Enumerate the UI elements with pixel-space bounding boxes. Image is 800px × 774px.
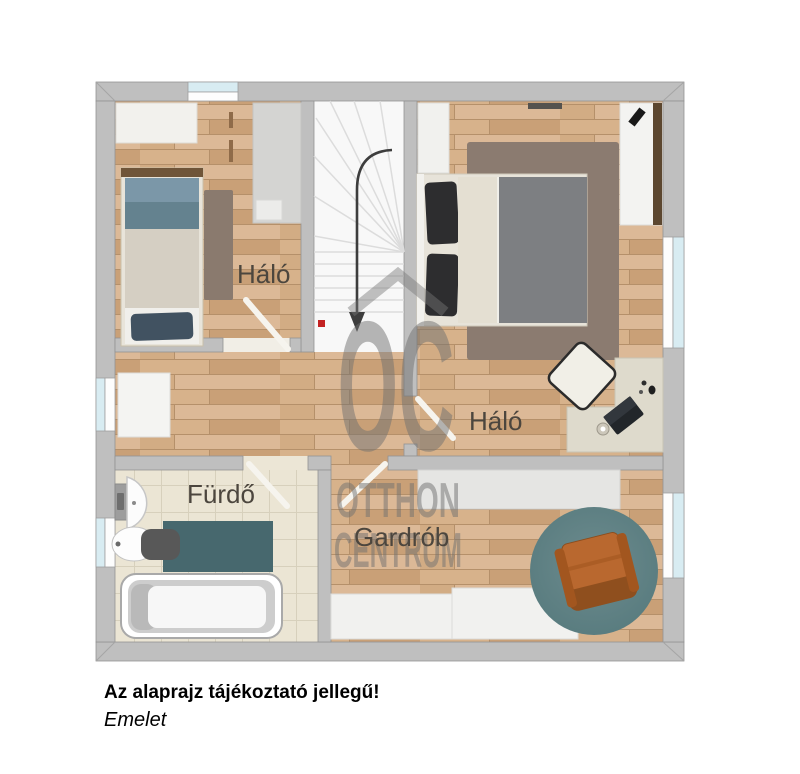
floor-name: Emelet <box>104 708 380 732</box>
label-master-bedroom: Háló <box>469 406 522 436</box>
single-bed-pillow <box>131 312 194 341</box>
double-bed-blanket <box>499 177 587 323</box>
single-bed-blanket-bottom <box>125 202 199 229</box>
wall-middle-long-center <box>308 456 331 470</box>
wall-bedroom-bottom-right <box>290 338 301 352</box>
wall-bedroom-stairs <box>301 101 314 352</box>
single-bed-cover <box>125 229 199 308</box>
single-bed-blanket-top <box>125 178 199 202</box>
floorplan-page: OC OTTHON CENTRUM Háló Háló Fürdő Gardró… <box>0 0 800 774</box>
closet-grey-inner <box>256 200 282 220</box>
window-top <box>188 82 238 101</box>
window-left-hallway <box>96 378 115 431</box>
stair-red-marker <box>318 320 325 327</box>
master-wardrobe-side <box>653 103 662 225</box>
watermark-logo: OC <box>338 284 455 490</box>
label-bathroom: Fürdő <box>187 479 255 509</box>
master-dresser <box>418 103 449 173</box>
hallway-dresser <box>118 373 170 437</box>
floorplan-drawing: OC OTTHON CENTRUM Háló Háló Fürdő Gardró… <box>0 0 800 695</box>
outer-wall-top <box>96 82 684 101</box>
window-right-wardrobe <box>663 493 684 578</box>
shelf-edge-mark1 <box>229 112 233 128</box>
double-bed-sheet-edge <box>497 177 499 323</box>
small-bedroom-rug <box>204 190 233 300</box>
single-bed <box>121 168 203 346</box>
wall-bath-wardrobe <box>318 470 331 642</box>
wall-art <box>528 103 562 109</box>
closet-white <box>116 103 197 143</box>
wardrobe-cabinet-bottom-left <box>331 594 452 639</box>
label-wardrobe-room: Gardrób <box>354 522 449 552</box>
outer-wall-bottom <box>96 642 684 661</box>
shelf-edge-mark2 <box>229 140 233 162</box>
disclaimer-text: Az alaprajz tájékoztató jellegű! <box>104 681 380 705</box>
double-bed-pillow1 <box>424 181 459 245</box>
single-bed-headboard <box>121 168 203 177</box>
window-right-master <box>663 237 684 348</box>
caption-block: Az alaprajz tájékoztató jellegű! Emelet <box>104 681 380 732</box>
label-small-bedroom: Háló <box>237 259 290 289</box>
wall-middle-long-left <box>115 456 243 470</box>
mug-inner <box>601 427 606 432</box>
toilet <box>112 527 180 561</box>
double-bed-mattress <box>458 177 500 323</box>
bathtub <box>121 574 282 638</box>
master-wardrobe <box>620 103 662 225</box>
watermark-brand-line1: OTTHON <box>336 474 460 528</box>
